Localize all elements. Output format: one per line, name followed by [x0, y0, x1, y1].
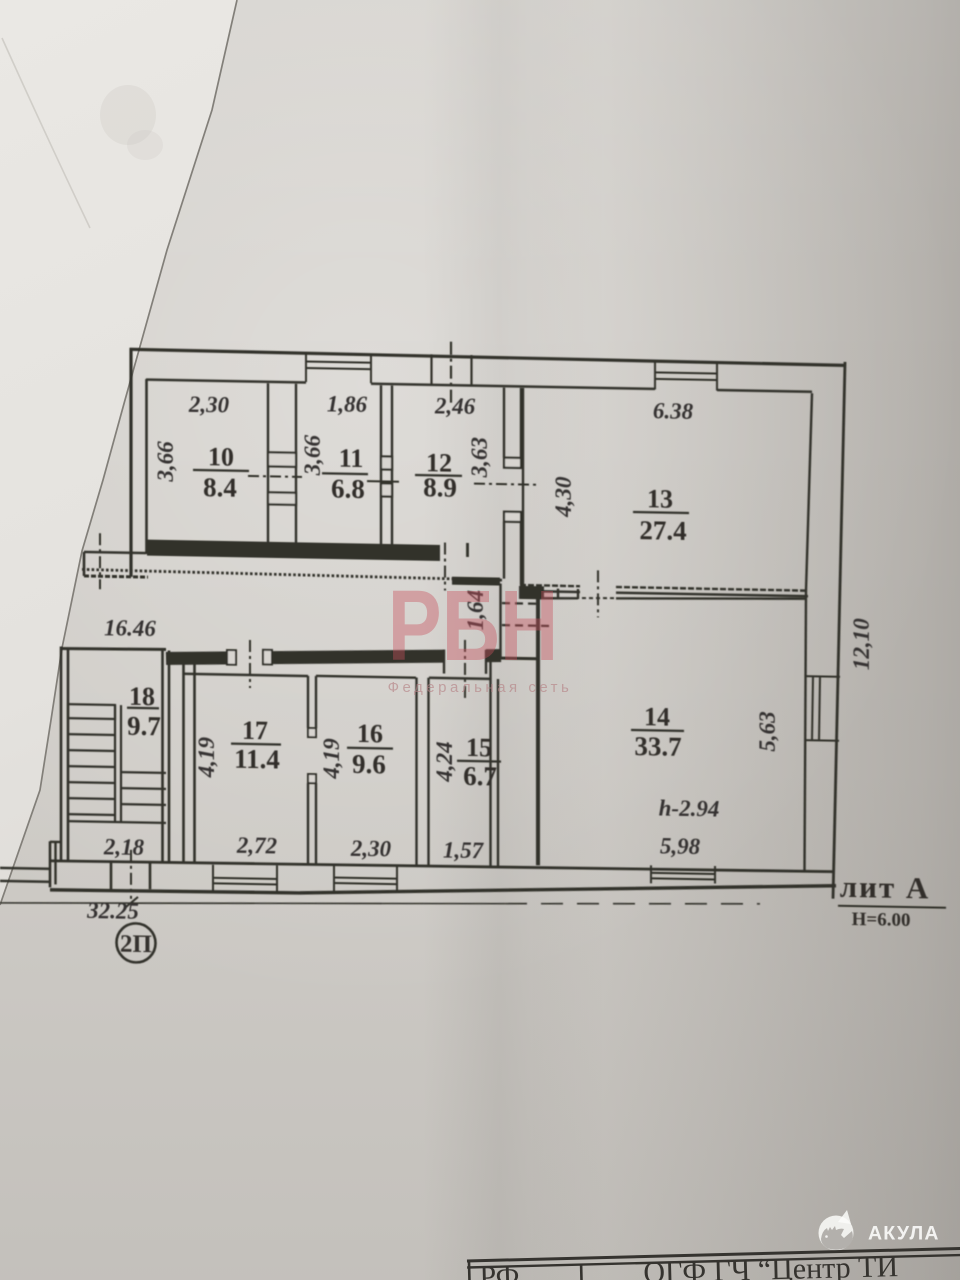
svg-text:13: 13	[647, 484, 673, 513]
svg-text:2,46: 2,46	[434, 393, 476, 419]
svg-text:2,30: 2,30	[350, 836, 392, 862]
svg-text:33.7: 33.7	[634, 731, 681, 762]
svg-text:14: 14	[644, 702, 670, 731]
svg-text:8.4: 8.4	[203, 472, 237, 503]
svg-text:9.6: 9.6	[352, 749, 386, 780]
svg-text:11.4: 11.4	[234, 744, 280, 775]
svg-text:16.46: 16.46	[104, 615, 156, 641]
svg-text:3,66: 3,66	[300, 434, 325, 476]
svg-text:2П: 2П	[120, 931, 152, 959]
svg-text:3,66: 3,66	[153, 441, 178, 483]
svg-text:18: 18	[129, 682, 155, 711]
svg-text:РФ: РФ	[479, 1260, 520, 1280]
svg-text:16: 16	[357, 719, 383, 748]
svg-text:6.38: 6.38	[653, 398, 694, 424]
svg-text:2,30: 2,30	[188, 392, 230, 418]
svg-text:2,72: 2,72	[236, 833, 277, 859]
svg-text:6.7: 6.7	[463, 761, 497, 792]
svg-text:1,86: 1,86	[327, 391, 368, 417]
svg-text:5,63: 5,63	[755, 711, 780, 752]
svg-text:H=6.00: H=6.00	[852, 909, 911, 931]
svg-text:11: 11	[339, 444, 364, 473]
svg-text:32.25: 32.25	[86, 898, 139, 924]
svg-text:10: 10	[208, 442, 234, 471]
svg-text:12,10: 12,10	[849, 618, 874, 671]
svg-text:1,57: 1,57	[443, 838, 485, 864]
svg-text:лит А: лит А	[840, 869, 931, 906]
svg-text:3,63: 3,63	[467, 437, 492, 479]
svg-text:6.8: 6.8	[331, 473, 365, 504]
svg-text:Федеральная сеть: Федеральная сеть	[388, 679, 573, 696]
svg-text:17: 17	[242, 716, 268, 745]
svg-text:27.4: 27.4	[639, 515, 686, 546]
svg-text:2,18: 2,18	[103, 834, 145, 860]
svg-text:5,98: 5,98	[660, 833, 701, 859]
svg-text:4,19: 4,19	[319, 738, 344, 780]
svg-text:4,24: 4,24	[432, 741, 457, 783]
svg-text:15: 15	[466, 733, 492, 762]
svg-text:9.7: 9.7	[127, 711, 161, 742]
svg-text:4,19: 4,19	[194, 736, 219, 778]
svg-text:4,30: 4,30	[551, 476, 576, 518]
svg-text:h-2.94: h-2.94	[659, 795, 720, 821]
svg-text:АКУЛА: АКУЛА	[868, 1223, 940, 1245]
svg-text:РБН: РБН	[388, 571, 559, 682]
svg-text:8.9: 8.9	[423, 472, 457, 503]
